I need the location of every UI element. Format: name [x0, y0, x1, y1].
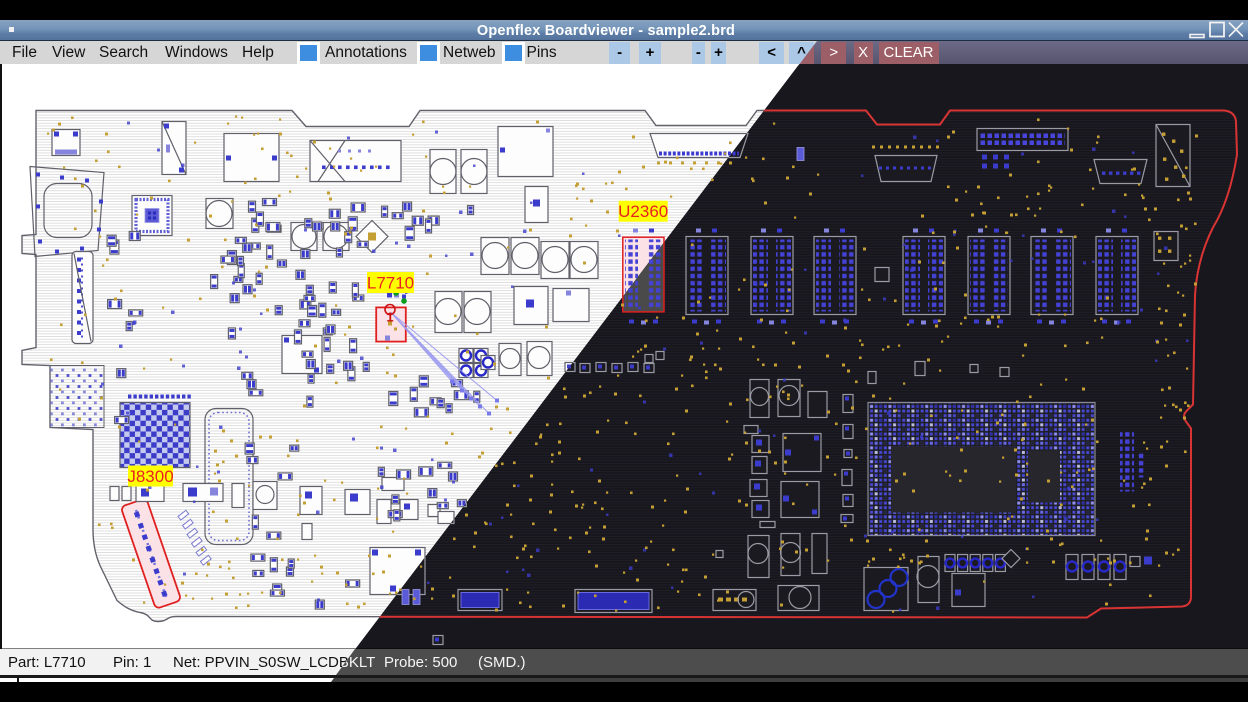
svg-text:U2360: U2360	[618, 202, 668, 221]
svg-text:L7710: L7710	[367, 274, 414, 293]
svg-text:J8300: J8300	[127, 467, 173, 486]
svg-text:1: 1	[386, 310, 393, 325]
